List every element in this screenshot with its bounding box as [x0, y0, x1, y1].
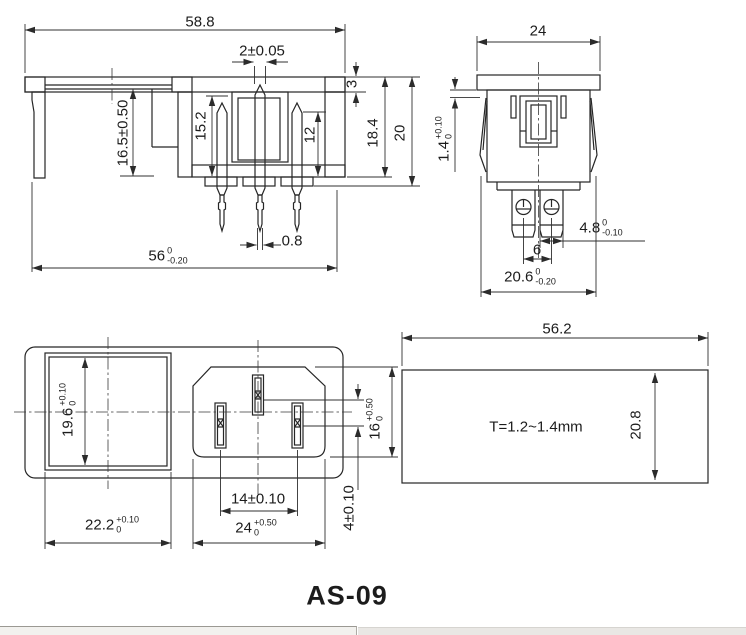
dim-pin-thickness: 0.8	[282, 234, 303, 249]
part-number-title: AS-09	[306, 581, 388, 612]
footer-bar-right-segment	[358, 627, 746, 635]
dim-panel-height: 20.8	[629, 410, 644, 439]
dim-socket-width: 24 +0.500	[235, 518, 276, 539]
dim-pin-pitch: 14±0.10	[231, 492, 285, 507]
dim-overall-width: 58.8	[185, 15, 214, 30]
technical-drawing-svg	[0, 0, 746, 635]
dim-front-body-width: 20.6 0-0.20	[504, 267, 556, 288]
dim-flange-thickness: 3	[345, 80, 360, 88]
dim-terminal-pitch: 6	[533, 243, 541, 258]
dim-cutout-height: 19.6 +0.100	[58, 383, 79, 437]
dim-cutout-width: 22.2 +0.100	[85, 515, 139, 536]
dim-body-depth: 18.4	[366, 118, 381, 147]
dim-terminal-width: 4.8 0-0.10	[579, 218, 622, 239]
dim-side-body-width: 56 0-0.20	[148, 246, 187, 267]
dim-panel-width: 56.2	[542, 322, 571, 337]
footer-bar-left-segment	[0, 626, 357, 635]
side-section-view	[25, 24, 420, 272]
dim-flange-lip: 1.4 +0.100	[434, 116, 455, 162]
dim-pin-depth: 12	[303, 127, 318, 144]
dim-flange-width: 24	[530, 24, 547, 39]
panel-thickness-note: T=1.2~1.4mm	[489, 420, 582, 435]
dim-cavity-depth: 15.2	[194, 111, 209, 140]
dim-contact-slot: 2±0.05	[239, 44, 285, 59]
panel-cutout-view	[402, 332, 708, 483]
drawing-sheet: 58.8 2±0.05 3 18.4 20 15.2 12 16.5±0.50 …	[0, 0, 746, 635]
dim-pin-offset: 4±0.10	[342, 485, 357, 531]
dim-overall-depth: 20	[393, 125, 408, 142]
dim-mount-depth: 16.5±0.50	[116, 100, 131, 167]
front-view	[450, 36, 645, 297]
dim-socket-height: 16 +0.500	[365, 398, 386, 439]
